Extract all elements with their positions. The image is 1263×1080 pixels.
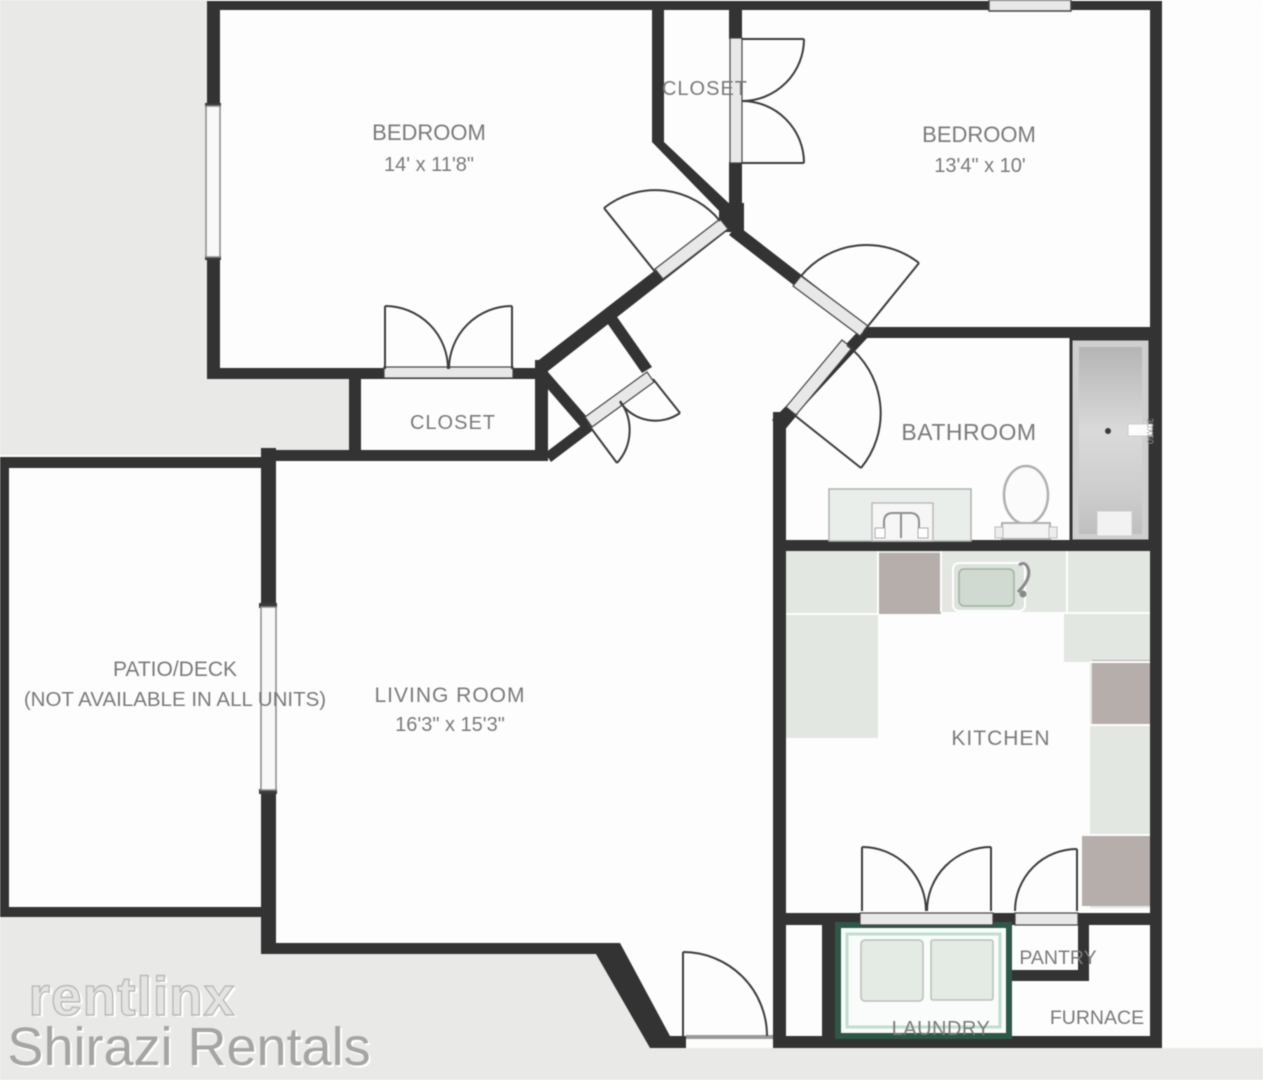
svg-text:PATIO/DECK: PATIO/DECK	[113, 658, 237, 681]
svg-text:(NOT AVAILABLE IN ALL UNITS): (NOT AVAILABLE IN ALL UNITS)	[24, 688, 326, 711]
svg-text:BEDROOM: BEDROOM	[922, 122, 1036, 147]
svg-text:30X60: 30X60	[1145, 418, 1155, 444]
svg-text:PANTRY: PANTRY	[1019, 947, 1096, 969]
svg-text:16'3" x 15'3": 16'3" x 15'3"	[395, 714, 505, 736]
svg-text:CLOSET: CLOSET	[662, 78, 748, 100]
svg-text:13'4" x 10': 13'4" x 10'	[934, 155, 1025, 177]
svg-text:FURNACE: FURNACE	[1050, 1007, 1144, 1029]
svg-text:BEDROOM: BEDROOM	[372, 120, 486, 145]
svg-text:14' x 11'8": 14' x 11'8"	[384, 154, 474, 176]
svg-text:Shirazi Rentals: Shirazi Rentals	[7, 1017, 370, 1077]
svg-text:LIVING ROOM: LIVING ROOM	[374, 684, 525, 707]
svg-text:KITCHEN: KITCHEN	[951, 727, 1050, 750]
svg-text:BATHROOM: BATHROOM	[901, 419, 1036, 445]
svg-text:LAUNDRY: LAUNDRY	[892, 1018, 991, 1040]
svg-text:CLOSET: CLOSET	[410, 412, 496, 434]
